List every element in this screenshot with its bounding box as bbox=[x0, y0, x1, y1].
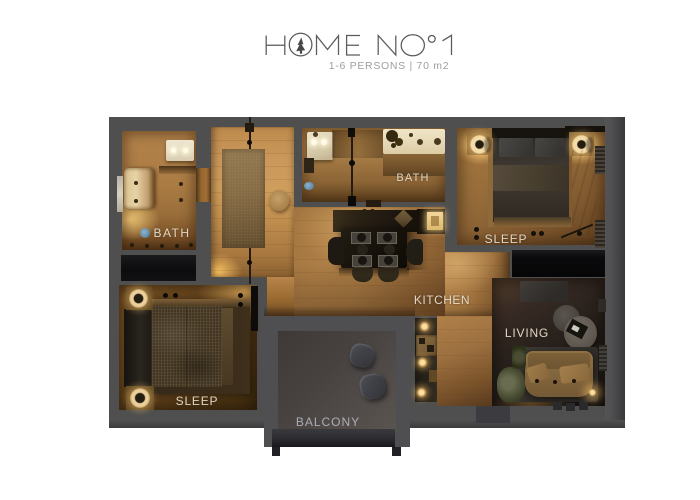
svg-text:1-6 PERSONS | 70 m2: 1-6 PERSONS | 70 m2 bbox=[329, 60, 449, 72]
